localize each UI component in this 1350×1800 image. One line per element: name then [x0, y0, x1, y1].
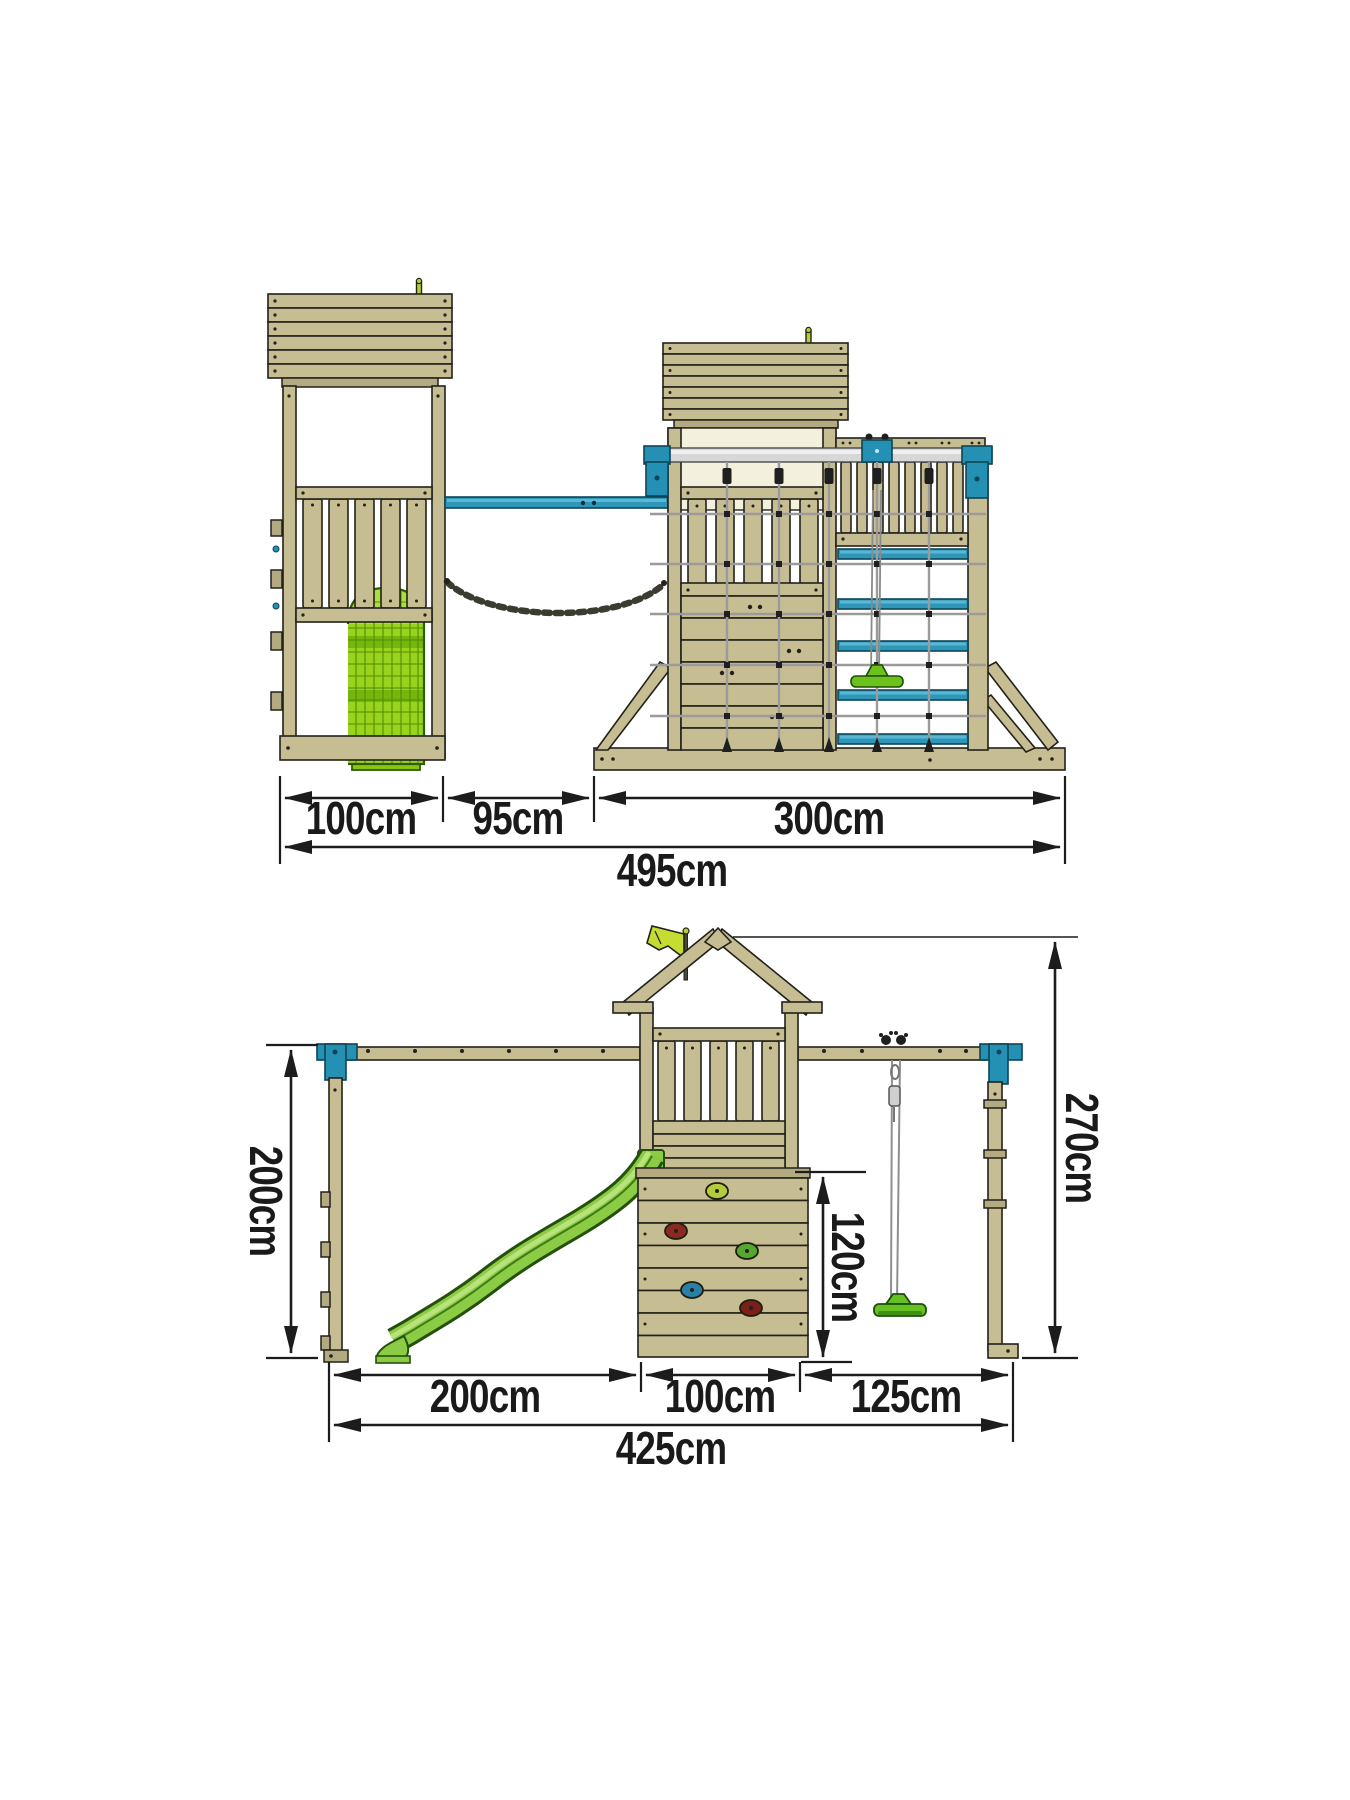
dim-side-gap-width: 95cm — [473, 792, 564, 844]
slide-tower-side — [268, 278, 452, 770]
left-roof — [268, 294, 452, 387]
side-view-diagram: 100cm 95cm 300cm 495cm — [268, 278, 1065, 896]
connector-bar — [445, 497, 668, 508]
dim-side-total-width: 495cm — [617, 844, 728, 896]
monkey-rungs — [838, 549, 968, 744]
wave-slide — [376, 1150, 664, 1363]
dimensions-side: 100cm 95cm 300cm 495cm — [280, 776, 1065, 896]
dim-front-wall-height: 120cm — [822, 1212, 874, 1323]
dim-front-frame-height: 200cm — [240, 1146, 292, 1257]
front-view-diagram: 200cm 120cm 270cm 200cm 100cm 125cm 425c… — [240, 926, 1108, 1474]
dim-side-frame-width: 300cm — [774, 792, 885, 844]
dim-front-slide-width: 200cm — [430, 1370, 541, 1422]
dim-side-tower-width: 100cm — [306, 792, 417, 844]
tower-front — [613, 926, 822, 1170]
climbing-wall — [636, 1168, 810, 1357]
dim-front-total-height: 270cm — [1056, 1093, 1108, 1204]
dim-front-total-width: 425cm — [616, 1422, 727, 1474]
chain-walk — [444, 578, 667, 613]
right-roof — [663, 343, 848, 428]
dim-front-tower-width: 100cm — [665, 1370, 776, 1422]
dim-front-swing-width: 125cm — [851, 1370, 962, 1422]
gable-roof — [613, 928, 822, 1015]
swing — [874, 1031, 926, 1316]
playset-dimension-diagram: 100cm 95cm 300cm 495cm — [0, 0, 1350, 1800]
climbing-frame-side — [594, 327, 1065, 770]
